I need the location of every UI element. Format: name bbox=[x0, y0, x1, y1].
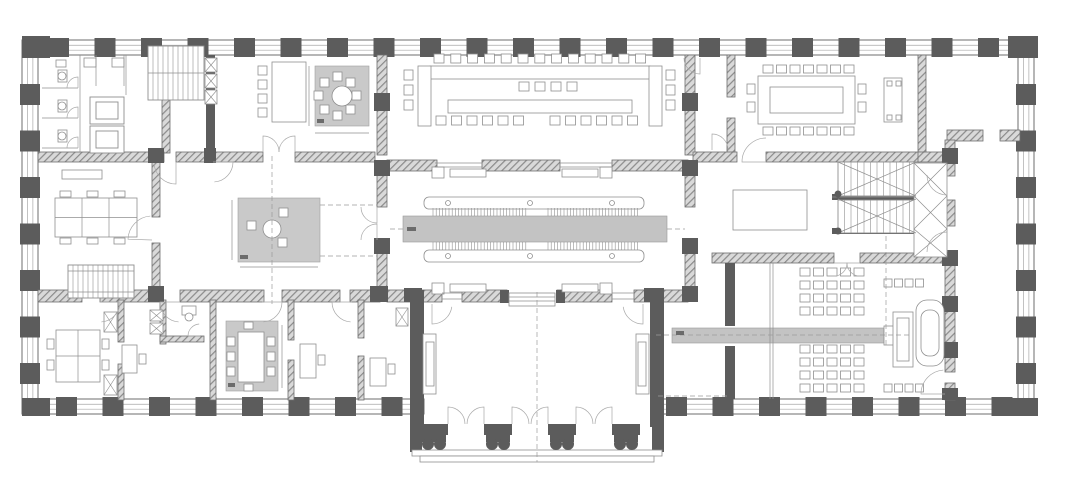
chair bbox=[905, 279, 913, 287]
pilaster bbox=[839, 38, 860, 57]
chair bbox=[777, 65, 787, 73]
chair bbox=[827, 268, 837, 276]
pilaster bbox=[281, 38, 302, 57]
chair bbox=[814, 371, 824, 379]
furniture bbox=[314, 91, 323, 100]
pilaster bbox=[932, 38, 953, 57]
elevator bbox=[96, 102, 118, 119]
chair bbox=[827, 294, 837, 302]
wall-pier bbox=[942, 148, 958, 164]
furniture bbox=[562, 284, 598, 292]
interior-wall bbox=[612, 160, 688, 171]
chair bbox=[636, 54, 646, 63]
chair bbox=[800, 371, 810, 379]
chair bbox=[452, 116, 462, 125]
chair bbox=[777, 127, 787, 135]
chair bbox=[258, 80, 267, 89]
chair bbox=[484, 54, 494, 63]
chair bbox=[619, 54, 629, 63]
chair bbox=[60, 191, 71, 197]
round-table bbox=[58, 132, 66, 140]
furniture bbox=[388, 364, 395, 374]
chair bbox=[451, 54, 461, 63]
chair bbox=[47, 360, 54, 370]
chair bbox=[854, 281, 864, 289]
chair bbox=[831, 65, 841, 73]
interior-wall bbox=[358, 356, 364, 400]
pilaster bbox=[1016, 270, 1036, 291]
wall-pier bbox=[370, 286, 388, 302]
round-table bbox=[446, 201, 451, 206]
column-detail bbox=[550, 438, 562, 450]
round-table bbox=[332, 86, 352, 106]
furniture bbox=[896, 115, 901, 120]
chair bbox=[535, 54, 545, 63]
pilaster bbox=[20, 177, 40, 198]
chair bbox=[258, 94, 267, 103]
gray-table bbox=[403, 216, 667, 242]
interior-wall bbox=[693, 152, 737, 162]
interior-wall bbox=[118, 300, 124, 342]
chair bbox=[612, 116, 622, 125]
toilet-fixture bbox=[84, 58, 96, 67]
chair bbox=[841, 371, 851, 379]
chair bbox=[267, 352, 275, 361]
pilaster bbox=[759, 397, 780, 416]
chair bbox=[747, 102, 755, 112]
corner-pier bbox=[1008, 36, 1038, 58]
column-detail bbox=[422, 438, 434, 450]
furniture bbox=[278, 238, 287, 247]
wall-pier bbox=[682, 238, 698, 254]
furniture bbox=[897, 318, 909, 361]
column-detail bbox=[835, 191, 842, 198]
chair bbox=[858, 102, 866, 112]
chair bbox=[814, 384, 824, 392]
chair bbox=[841, 281, 851, 289]
pilaster bbox=[978, 38, 999, 57]
round-table bbox=[528, 201, 533, 206]
column-detail bbox=[486, 438, 498, 450]
furniture bbox=[432, 167, 444, 178]
pilaster bbox=[374, 38, 395, 57]
furniture bbox=[450, 169, 486, 177]
wall-pier bbox=[682, 93, 698, 111]
chair bbox=[514, 116, 524, 125]
interior-wall bbox=[160, 336, 204, 342]
floor-plan-page bbox=[0, 0, 1072, 484]
round-table bbox=[610, 254, 615, 259]
chair bbox=[831, 127, 841, 135]
chair bbox=[854, 268, 864, 276]
pilaster bbox=[699, 38, 720, 57]
tiny-label-mark bbox=[228, 383, 235, 387]
pilaster bbox=[20, 270, 40, 291]
interior-wall bbox=[918, 55, 926, 154]
furniture bbox=[333, 72, 342, 81]
chair bbox=[501, 54, 511, 63]
chair bbox=[800, 307, 810, 315]
pilaster bbox=[1016, 224, 1036, 245]
interior-wall bbox=[152, 162, 160, 217]
chair bbox=[827, 384, 837, 392]
corner-pier bbox=[22, 36, 50, 58]
chair bbox=[102, 339, 109, 349]
facade-wall bbox=[22, 399, 424, 414]
chair bbox=[841, 384, 851, 392]
chair bbox=[790, 127, 800, 135]
furniture bbox=[600, 283, 612, 294]
interior-wall bbox=[712, 253, 834, 263]
chair bbox=[404, 100, 413, 110]
furniture bbox=[509, 293, 555, 306]
chair bbox=[666, 100, 675, 110]
chair bbox=[800, 358, 810, 366]
chair bbox=[916, 279, 924, 287]
furniture bbox=[346, 78, 355, 87]
pilaster bbox=[242, 397, 263, 416]
pilaster bbox=[852, 397, 873, 416]
chair bbox=[827, 371, 837, 379]
interior-wall bbox=[210, 300, 216, 400]
chair bbox=[804, 127, 814, 135]
chair bbox=[550, 116, 560, 125]
interior-wall bbox=[288, 300, 294, 340]
column-detail bbox=[626, 438, 638, 450]
chair bbox=[817, 127, 827, 135]
chair bbox=[800, 294, 810, 302]
chair bbox=[854, 307, 864, 315]
interior-wall bbox=[38, 152, 164, 162]
furniture bbox=[247, 221, 256, 230]
chair bbox=[602, 54, 612, 63]
furniture bbox=[649, 66, 662, 126]
interior-wall bbox=[358, 300, 364, 338]
wall-pier bbox=[942, 296, 958, 312]
wall-pier bbox=[148, 148, 164, 163]
elevator bbox=[96, 131, 118, 148]
round-table bbox=[58, 102, 66, 110]
chair bbox=[814, 294, 824, 302]
round-table bbox=[185, 313, 193, 321]
chair bbox=[854, 371, 864, 379]
facade-wall bbox=[652, 399, 1034, 414]
interior-wall bbox=[387, 160, 437, 171]
round-table bbox=[446, 254, 451, 259]
chair bbox=[227, 352, 235, 361]
chair bbox=[854, 384, 864, 392]
furniture bbox=[887, 115, 892, 120]
toilet-fixture bbox=[56, 60, 66, 67]
wall-pier bbox=[644, 288, 664, 302]
pilaster bbox=[149, 397, 170, 416]
pilaster bbox=[1016, 84, 1036, 105]
chair bbox=[800, 281, 810, 289]
furniture bbox=[320, 78, 329, 87]
furniture bbox=[320, 105, 329, 114]
chair bbox=[552, 54, 562, 63]
furniture bbox=[352, 91, 361, 100]
chair bbox=[827, 307, 837, 315]
chair bbox=[814, 307, 824, 315]
furniture bbox=[272, 62, 306, 122]
pilaster bbox=[1016, 317, 1036, 338]
floor-plan-canvas bbox=[0, 0, 1072, 484]
chair bbox=[827, 345, 837, 353]
pilaster bbox=[20, 317, 40, 338]
furniture bbox=[562, 169, 598, 177]
furniture bbox=[448, 100, 632, 113]
interior-wall bbox=[152, 243, 160, 292]
chair bbox=[434, 54, 444, 63]
furniture bbox=[887, 81, 892, 86]
chair bbox=[467, 116, 477, 125]
pilaster bbox=[20, 363, 40, 384]
chair bbox=[763, 65, 773, 73]
interior-wall bbox=[947, 130, 983, 141]
chair bbox=[518, 54, 528, 63]
pilaster bbox=[713, 397, 734, 416]
furniture bbox=[432, 283, 444, 294]
chair bbox=[258, 108, 267, 117]
corner-pier bbox=[1008, 398, 1038, 416]
pilaster bbox=[95, 38, 116, 57]
interior-wall bbox=[288, 360, 294, 400]
chair bbox=[404, 85, 413, 95]
pilaster bbox=[666, 397, 687, 416]
tiny-label-mark bbox=[676, 331, 684, 335]
furniture bbox=[238, 332, 264, 382]
chair bbox=[841, 358, 851, 366]
chair bbox=[666, 85, 675, 95]
bench bbox=[921, 310, 939, 356]
pilaster bbox=[327, 38, 348, 57]
pilaster bbox=[899, 397, 920, 416]
furniture bbox=[638, 342, 646, 386]
chair bbox=[436, 116, 446, 125]
pilaster bbox=[20, 131, 40, 152]
chair bbox=[468, 54, 478, 63]
interior-wall bbox=[213, 152, 263, 162]
column-detail bbox=[835, 228, 842, 235]
chair bbox=[567, 82, 577, 91]
furniture bbox=[318, 355, 325, 365]
chair bbox=[827, 358, 837, 366]
interior-wall bbox=[295, 152, 375, 162]
chair bbox=[844, 127, 854, 135]
toilet-fixture bbox=[112, 58, 124, 67]
chair bbox=[87, 238, 98, 244]
chair bbox=[114, 191, 125, 197]
interior-wall bbox=[482, 160, 560, 171]
pilaster bbox=[48, 38, 69, 57]
wall-pier bbox=[410, 425, 422, 452]
chair bbox=[87, 191, 98, 197]
furniture bbox=[244, 322, 253, 329]
gray-table bbox=[672, 328, 884, 343]
chair bbox=[597, 116, 607, 125]
furniture bbox=[370, 358, 386, 386]
corner-pier bbox=[22, 398, 50, 416]
furniture bbox=[62, 170, 102, 179]
furniture bbox=[244, 384, 253, 391]
chair bbox=[854, 294, 864, 302]
wall-pier bbox=[374, 160, 390, 176]
interior-wall bbox=[1000, 130, 1020, 141]
furniture bbox=[430, 66, 650, 79]
wall-pier bbox=[410, 290, 424, 427]
pilaster bbox=[1016, 363, 1036, 384]
round-table bbox=[528, 254, 533, 259]
chair bbox=[905, 384, 913, 392]
chair bbox=[566, 116, 576, 125]
interior-wall bbox=[180, 290, 264, 302]
furniture bbox=[600, 167, 612, 178]
furniture bbox=[896, 81, 901, 86]
furniture bbox=[300, 344, 316, 378]
interior-wall bbox=[766, 152, 920, 162]
furniture bbox=[333, 111, 342, 120]
tiny-label-mark bbox=[240, 255, 248, 259]
pilaster bbox=[382, 397, 403, 416]
chair bbox=[814, 345, 824, 353]
pilaster bbox=[746, 38, 767, 57]
column-detail bbox=[434, 438, 446, 450]
chair bbox=[895, 279, 903, 287]
column-detail bbox=[614, 438, 626, 450]
chair bbox=[628, 116, 638, 125]
furniture bbox=[346, 105, 355, 114]
chair bbox=[854, 358, 864, 366]
chair bbox=[854, 345, 864, 353]
chair bbox=[267, 367, 275, 376]
chair bbox=[483, 116, 493, 125]
furniture bbox=[426, 342, 434, 386]
wall-pier bbox=[725, 346, 735, 399]
chair bbox=[841, 307, 851, 315]
wall-pier bbox=[374, 93, 390, 111]
chair bbox=[535, 82, 545, 91]
chair bbox=[267, 337, 275, 346]
round-table bbox=[58, 72, 66, 80]
wall-pier bbox=[650, 290, 664, 427]
chair bbox=[227, 337, 235, 346]
wall-pier bbox=[148, 286, 164, 302]
chair bbox=[227, 367, 235, 376]
chair bbox=[804, 65, 814, 73]
chair bbox=[551, 82, 561, 91]
column-detail bbox=[562, 438, 574, 450]
chair bbox=[884, 279, 892, 287]
chair bbox=[568, 54, 578, 63]
wall-pier bbox=[682, 160, 698, 176]
chair bbox=[844, 65, 854, 73]
chair bbox=[800, 384, 810, 392]
chair bbox=[827, 281, 837, 289]
chair bbox=[814, 281, 824, 289]
tiny-label-mark bbox=[317, 119, 324, 123]
chair bbox=[581, 116, 591, 125]
wall-pier bbox=[725, 263, 735, 326]
wall-pier bbox=[652, 425, 664, 452]
chair bbox=[841, 294, 851, 302]
pilaster bbox=[20, 84, 40, 105]
chair bbox=[498, 116, 508, 125]
pilaster bbox=[20, 224, 40, 245]
chair bbox=[404, 70, 413, 80]
chair bbox=[519, 82, 529, 91]
pilaster bbox=[1016, 177, 1036, 198]
pilaster bbox=[885, 38, 906, 57]
pilaster bbox=[653, 38, 674, 57]
pilaster bbox=[56, 397, 77, 416]
chair bbox=[60, 238, 71, 244]
wall-pier bbox=[204, 148, 216, 163]
furniture bbox=[770, 87, 843, 113]
furniture bbox=[139, 354, 146, 364]
chair bbox=[814, 358, 824, 366]
round-table bbox=[610, 201, 615, 206]
wall-pier bbox=[942, 342, 958, 358]
wall-pier bbox=[404, 288, 422, 302]
chair bbox=[814, 268, 824, 276]
furniture bbox=[450, 284, 486, 292]
tiny-label-mark bbox=[407, 227, 416, 231]
chair bbox=[666, 70, 675, 80]
interior-wall bbox=[727, 55, 735, 97]
chair bbox=[800, 345, 810, 353]
chair bbox=[47, 339, 54, 349]
chair bbox=[790, 65, 800, 73]
chair bbox=[114, 238, 125, 244]
pilaster bbox=[234, 38, 255, 57]
furniture bbox=[122, 345, 137, 373]
pilaster bbox=[792, 38, 813, 57]
pilaster bbox=[806, 397, 827, 416]
chair bbox=[102, 360, 109, 370]
furniture bbox=[418, 66, 431, 126]
furniture bbox=[733, 190, 807, 230]
chair bbox=[258, 66, 267, 75]
chair bbox=[800, 268, 810, 276]
wall-pier bbox=[682, 286, 698, 302]
column-detail bbox=[498, 438, 510, 450]
chair bbox=[763, 127, 773, 135]
chair bbox=[585, 54, 595, 63]
chair bbox=[858, 84, 866, 94]
chair bbox=[841, 345, 851, 353]
chair bbox=[895, 384, 903, 392]
chair bbox=[747, 84, 755, 94]
chair bbox=[884, 384, 892, 392]
furniture bbox=[884, 326, 894, 345]
wall-pier bbox=[500, 290, 509, 303]
pilaster bbox=[335, 397, 356, 416]
furniture bbox=[279, 208, 288, 217]
wall-pier bbox=[374, 238, 390, 254]
chair bbox=[817, 65, 827, 73]
